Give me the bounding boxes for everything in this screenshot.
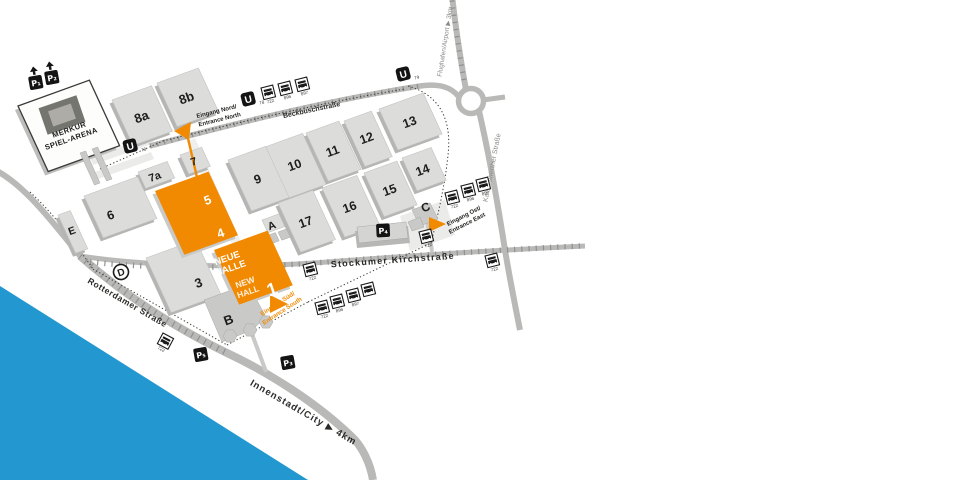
roundabout [459,89,484,114]
bus-stop-icon [361,282,376,297]
bus-stop-icon: 722 [445,190,461,210]
bus-route-label: 896 [283,94,292,101]
bus-stop-icon: 896 [461,183,477,203]
ubahn-line-label: 78 [259,99,266,105]
bus-route-label: 722 [490,266,499,273]
map-svg: MERKUR SPIEL-ARENA P₁ P₂ [0,0,960,480]
ubahn-station-icon: U 79 [395,64,420,85]
arrow-up-icon [45,61,54,67]
entrance-D-badge: D [111,262,130,281]
arrow-stem [33,71,36,75]
arrow-stem [49,66,52,70]
parking-p1: P₁ [26,65,43,90]
parking-p4-label: P₄ [378,226,388,236]
street-stockumer: Stockumer Kirchstraße [330,251,455,270]
bus-stop-icon: 896 [330,294,346,314]
arrow-up-icon [29,66,38,72]
fairground-map: MERKUR SPIEL-ARENA P₁ P₂ [0,0,960,480]
ubahn-line-label: 79 [414,74,421,80]
bus-route-label: 897 [300,90,309,97]
bus-route-label: 897 [351,301,360,308]
bus-route-label: 722 [450,203,459,210]
road-airport [452,0,466,90]
ubahn-line-label: 78 [141,146,148,152]
parking-p2: P₂ [42,60,59,85]
parking-p4: P₄ [376,223,390,237]
bus-stop-icon: 896 [278,81,294,101]
bus-stop-icon: 722 [485,253,501,273]
parking-p5: P₅ [193,347,209,363]
bus-route-label: 722 [266,98,275,105]
bus-stop-icon: 897 [346,288,362,308]
bus-stop-icon: 722 [315,300,331,320]
street-city: Innenstadt/City ▶ 4km [248,378,358,448]
road-stub-east [483,97,505,100]
bus-route-label: 722 [320,313,329,320]
bus-stop-icon: 897 [295,77,311,97]
bus-route-label: 722 [308,275,317,282]
bus-route-label: 896 [466,196,475,203]
bus-stop-icon: 722 [155,333,174,354]
street-airport: Flughafen/Airport ▶ 3km [437,6,455,77]
bus-route-label: 896 [335,307,344,314]
parking-p3: P₃ [280,355,296,371]
